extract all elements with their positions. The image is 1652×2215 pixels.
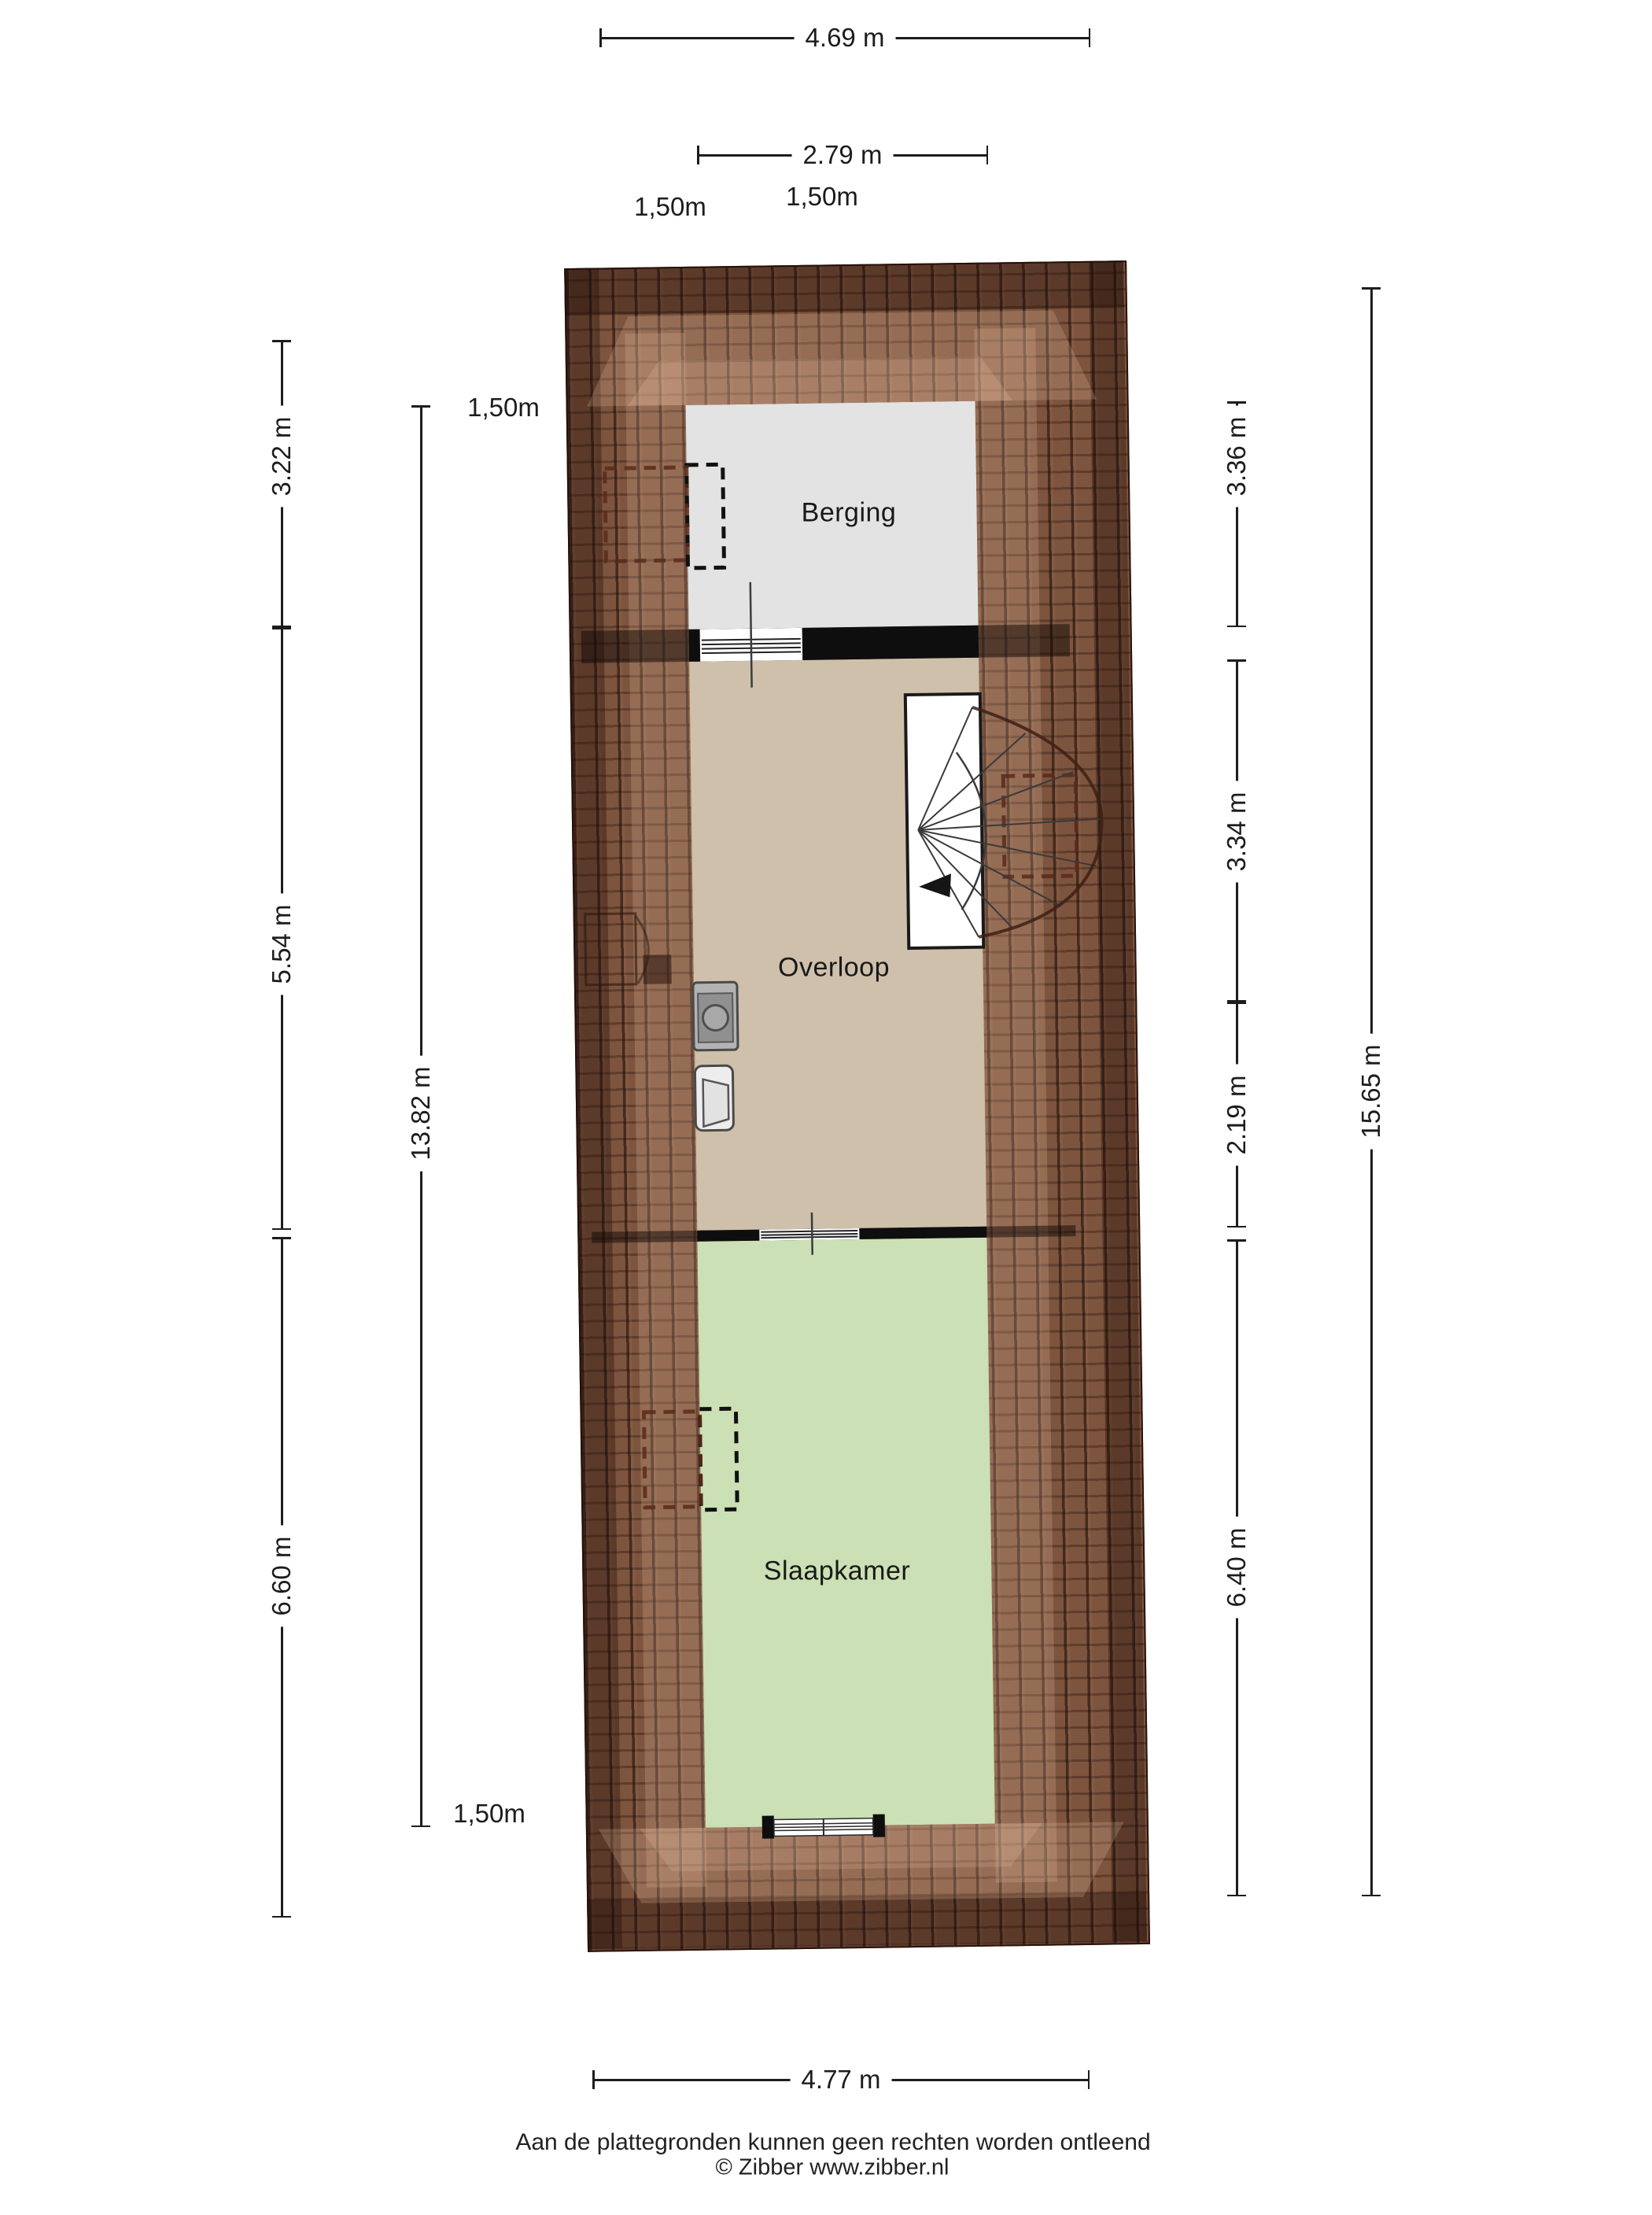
dim-left-slaapkamer-label: 6.60 m [265,1526,298,1627]
dim-left-slaapkamer: 6.60 m [272,1237,291,1918]
dim-left-berging: 3.22 m [272,340,291,627]
dim-top-inner-width: 2.79 m [697,146,988,164]
footer-credit: © Zibber www.zibber.nl [716,2155,950,2181]
dim-left-overloop-label: 5.54 m [265,894,298,995]
dim-right-slaapkamer-label: 6.40 m [1220,1517,1253,1619]
skylight-slaapkamer-roof-marking [643,1412,701,1508]
marker-150-top-right: 1,50m [783,181,861,212]
section-line-1 [750,582,752,688]
dim-right-overloop-a-label: 3.34 m [1220,781,1253,883]
room-label-slaapkamer: Slaapkamer [764,1556,910,1587]
dim-left-inner-total: 13.82 m [411,405,430,1827]
dim-right-slaapkamer: 6.40 m [1227,1239,1246,1896]
dim-top-width: 4.69 m [599,28,1090,47]
marker-150-top-left: 1,50m [631,191,710,223]
dim-top-inner-width-label: 2.79 m [792,138,894,172]
staircase-arc [972,706,1104,937]
washing-machine-icon [693,982,738,1050]
skylight-overloop-roof-marking [1003,775,1077,877]
dim-top-width-label: 4.69 m [795,21,896,54]
dim-bottom-width: 4.77 m [592,2070,1090,2089]
window-slaapkamer [762,1814,885,1839]
skylight-berging-icon [687,464,725,568]
section-line-2 [812,1213,813,1255]
dim-right-overloop-b-label: 2.19 m [1220,1065,1253,1166]
toilet-icon [695,1065,733,1131]
plan-linework [0,0,1652,2215]
floorplan-page: { "title": "Attic floor plan (plattegron… [0,0,1652,2203]
skylight-slaapkamer-icon [699,1408,737,1510]
dim-left-berging-label: 3.22 m [265,406,298,508]
dim-right-total: 15.65 m [1362,287,1381,1896]
skylight-berging-roof-marking [605,467,688,561]
room-label-berging: Berging [802,498,897,529]
dim-right-total-label: 15.65 m [1355,1033,1388,1149]
room-label-overloop: Overloop [778,953,890,984]
footer-disclaimer: Aan de plattegronden kunnen geen rechten… [515,2129,1150,2156]
dim-right-berging-label: 3.36 m [1220,406,1253,508]
dim-bottom-width-label: 4.77 m [791,2063,892,2096]
marker-150-left-top: 1,50m [464,392,543,423]
marker-150-left-bottom: 1,50m [450,1798,529,1829]
dim-right-overloop-b: 2.19 m [1227,1002,1246,1227]
floorplan-drawing [0,0,1652,2215]
slaapkamer-door-lines [761,1231,857,1238]
dim-left-overloop: 5.54 m [272,627,291,1230]
dim-right-berging: 3.36 m [1227,401,1246,627]
dim-left-inner-total-label: 13.82 m [404,1055,437,1171]
door-under-roof [585,913,672,985]
dim-right-overloop-a: 3.34 m [1227,659,1246,1002]
